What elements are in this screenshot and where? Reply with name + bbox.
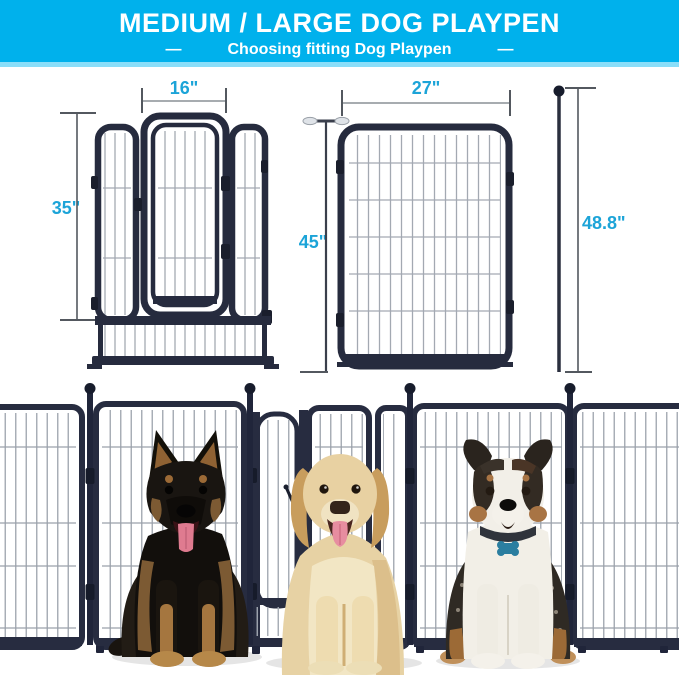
medium-panel-diagram [60,88,279,369]
large-left-foot [337,362,351,367]
playpen-infographic: MEDIUM / LARGE DOG PLAYPEN — Choosing fi… [0,0,679,675]
header-banner: MEDIUM / LARGE DOG PLAYPEN — Choosing fi… [0,0,679,67]
medium-right-wires [237,133,260,315]
playpen-photo-scene [0,383,679,675]
medium-right-foot [264,364,279,369]
bone-tag [497,541,519,556]
large-panel-wires [349,135,501,357]
medium-height-dimension [60,113,96,320]
subtitle-right-dash: — [497,41,513,59]
medium-crossbar [95,316,271,325]
large-right-foot [499,362,513,367]
page-subtitle: — Choosing fitting Dog Playpen — [0,41,679,59]
large-width-dimension [342,90,510,116]
medium-left-wires [103,133,131,315]
medium-skirt-wires [101,325,265,357]
page-title: MEDIUM / LARGE DOG PLAYPEN [0,8,679,39]
large-bottom-bar [345,354,505,363]
pole-length-dimension [565,88,596,372]
gate-width-dimension [142,88,226,113]
dimension-diagrams [0,67,679,383]
gate-wires [158,131,212,299]
large-panel-diagram [300,86,596,373]
subtitle-text: Choosing fitting Dog Playpen [228,41,452,59]
connecting-pole-figure [554,86,565,373]
medium-bottom-bar [92,356,274,365]
medium-left-foot [87,364,102,369]
subtitle-left-dash: — [166,41,182,59]
gate-bottom-bar [153,296,217,304]
